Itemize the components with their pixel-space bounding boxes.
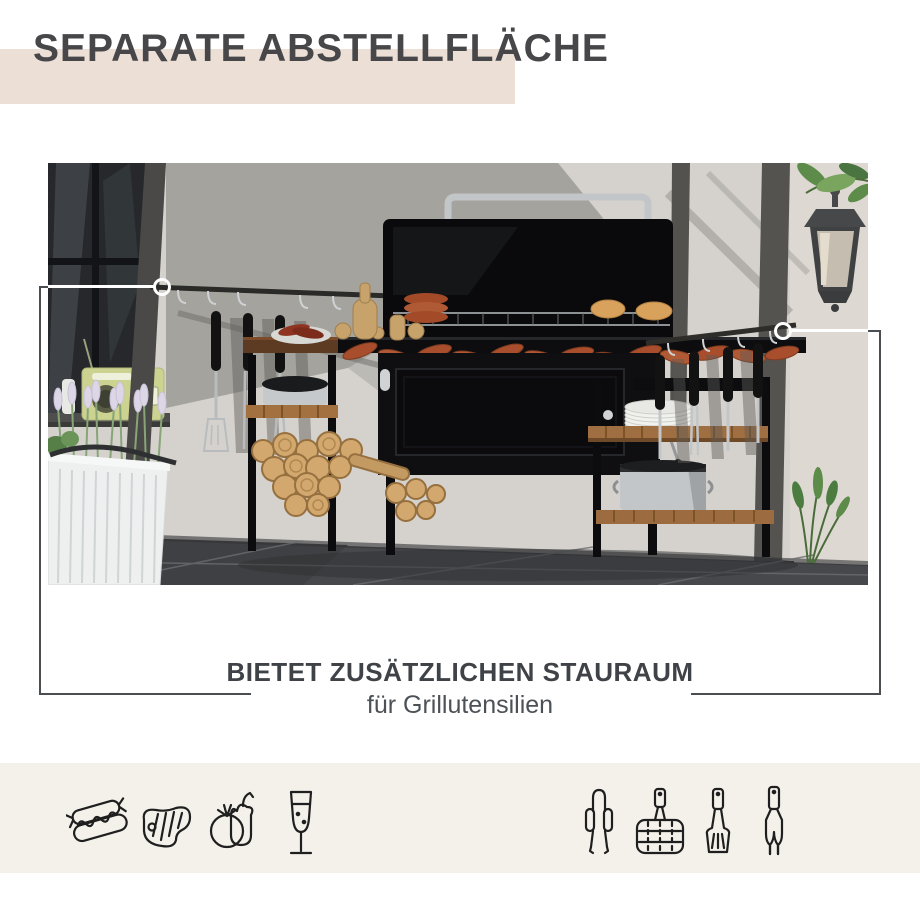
bbq-fork-icon	[757, 784, 791, 856]
caption-heading: BIETET ZUSÄTZLICHEN STAURAUM	[0, 657, 920, 688]
stock-pot	[614, 460, 712, 510]
lower-slat-shelf	[596, 510, 774, 524]
burger-bun	[636, 302, 672, 320]
callout-circle-right	[774, 322, 792, 340]
door-handle	[603, 410, 613, 420]
callout-line-right-on-photo	[792, 329, 868, 332]
burger-bun	[591, 300, 625, 318]
product-photo	[48, 163, 868, 585]
hotdog-icon	[66, 793, 132, 853]
cabinet-door	[396, 369, 624, 455]
caption-subheading: für Grillutensilien	[0, 691, 920, 720]
callout-line-left-bottom	[39, 693, 251, 695]
page-title: SEPARATE ABSTELLFLÄCHE	[33, 27, 893, 71]
callout-line-left-on-photo	[48, 285, 154, 288]
callout-line-right-bottom	[691, 693, 881, 695]
drink-glass-icon	[283, 788, 319, 860]
vegetables-icon	[203, 789, 269, 857]
footer-icon-strip	[0, 763, 920, 873]
steak-icon	[136, 800, 196, 852]
callout-line-right-vertical	[879, 330, 881, 695]
photo-scene	[48, 163, 868, 585]
grill-basket-icon	[632, 786, 688, 856]
cabinet-latch	[380, 369, 390, 391]
callout-circle-left	[153, 278, 171, 296]
callout-line-left-vertical	[39, 286, 41, 695]
tongs-icon	[584, 787, 614, 857]
spatula-icon	[701, 786, 735, 856]
